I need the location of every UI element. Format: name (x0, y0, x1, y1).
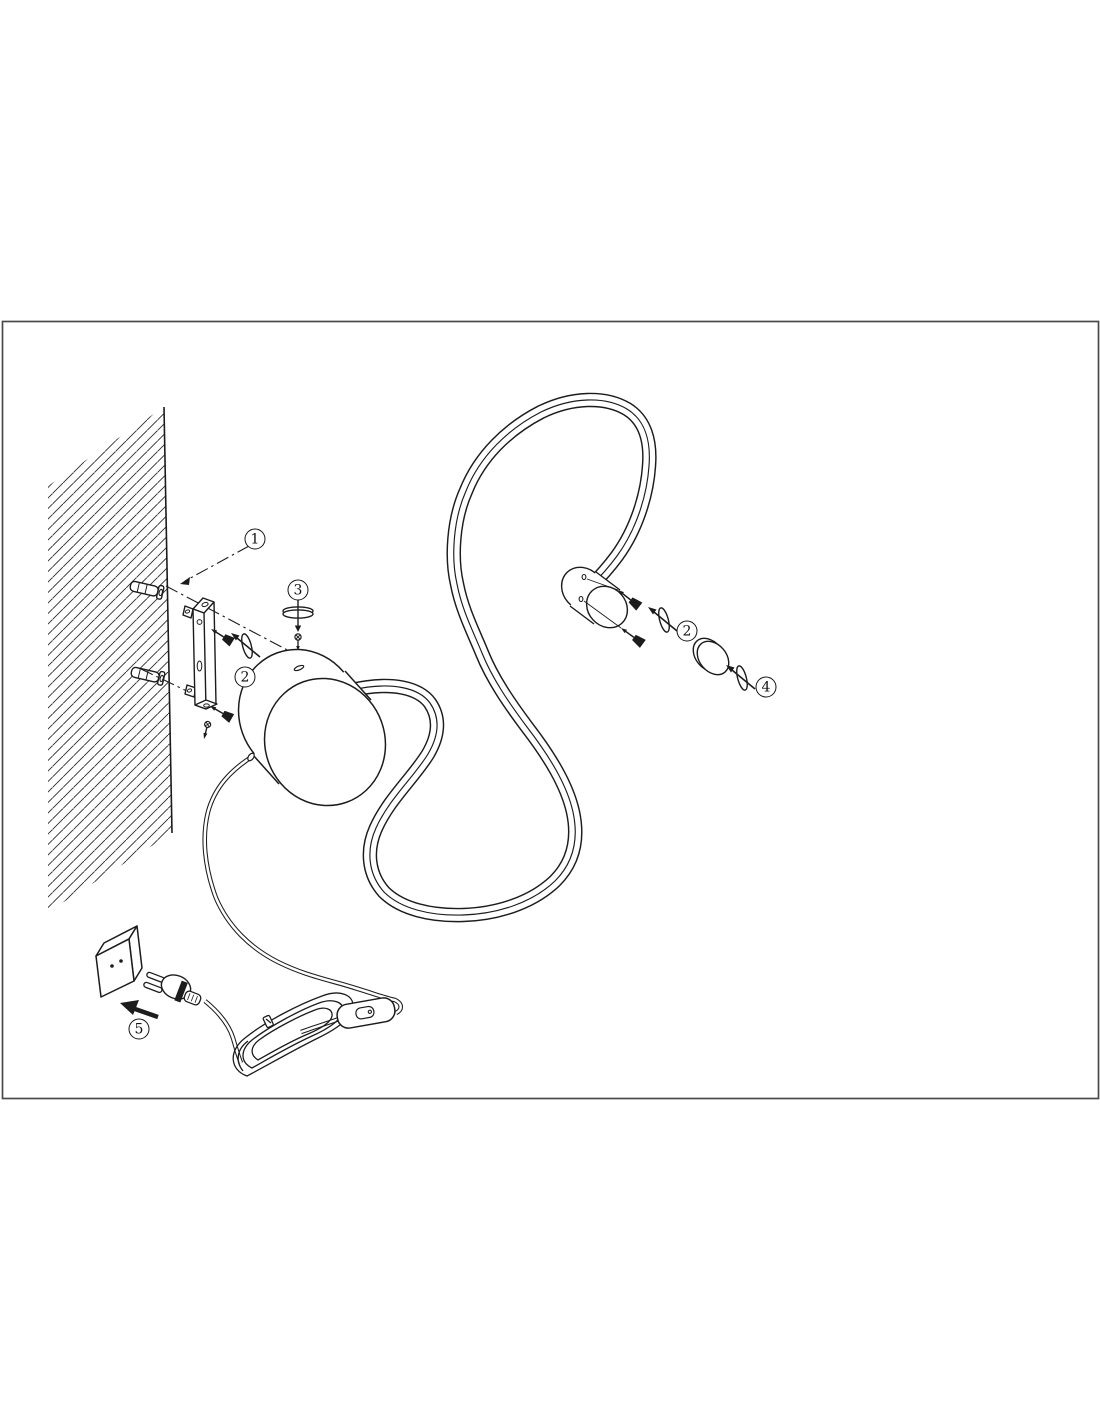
leader-arrowhead (180, 577, 190, 585)
callout-4: 4 (756, 677, 777, 698)
socket-hole (110, 964, 114, 968)
socket-hole (119, 959, 123, 963)
cord-clip (263, 1015, 274, 1028)
callout-1: 1 (245, 529, 266, 550)
end-cap (687, 632, 735, 681)
wall-socket (96, 926, 142, 997)
instruction-page: 1 2 3 2 4 5 (0, 0, 1100, 1422)
screwing-symbol-bracket-icon (231, 633, 260, 659)
insert-arrow-icon (120, 1000, 158, 1017)
wall (48, 407, 172, 912)
screwing-symbol-cap-icon (726, 665, 755, 691)
lamp-tube (352, 400, 649, 915)
inline-switch (335, 996, 396, 1030)
assembly-diagram (0, 0, 1100, 1422)
cord-coil (233, 993, 353, 1076)
end-screw-bottom-icon (618, 624, 646, 648)
callout-3: 3 (288, 580, 309, 601)
lamp-base (221, 632, 404, 822)
bracket-screw-top-icon (208, 625, 235, 647)
callout-2-bracket: 2 (235, 667, 256, 688)
tube-end-cylinder (553, 559, 636, 637)
callout-2-end: 2 (677, 621, 698, 642)
power-plug (143, 971, 202, 1006)
mounting-bracket (183, 598, 217, 709)
callout-5: 5 (129, 1019, 150, 1040)
base-cord-hole (246, 752, 255, 762)
small-screw-below-bracket-icon (201, 721, 211, 740)
screwing-symbol-end-icon (648, 607, 677, 633)
